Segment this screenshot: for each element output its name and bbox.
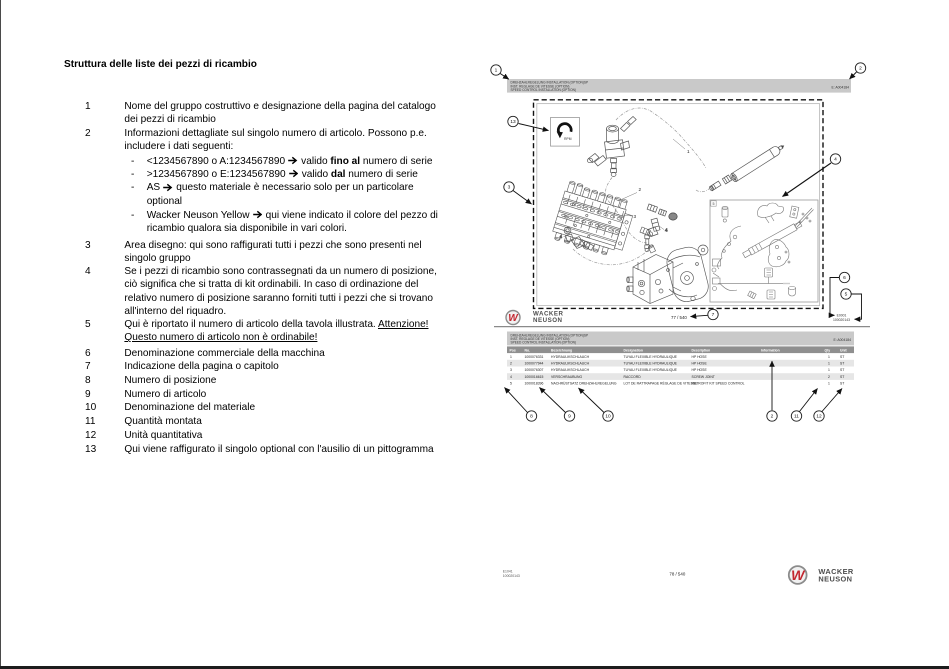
svg-text:1000016615: 1000016615 xyxy=(525,375,544,379)
svg-text:2: 2 xyxy=(639,187,642,192)
svg-text:Qty: Qty xyxy=(825,348,831,352)
svg-text:1000018396: 1000018396 xyxy=(525,382,544,386)
svg-text:TUYAU FLEXIBLE HYDRAULIQUE: TUYAU FLEXIBLE HYDRAULIQUE xyxy=(624,362,678,366)
svg-text:1: 1 xyxy=(495,68,498,74)
svg-text:5: 5 xyxy=(713,202,715,206)
svg-text:SPEED CONTROL INSTALLATION (OP: SPEED CONTROL INSTALLATION (OPTION) xyxy=(511,341,576,345)
svg-text:13: 13 xyxy=(510,119,516,125)
svg-text:2: 2 xyxy=(859,66,862,72)
svg-text:LOT DE RATTRAPAGE RÉGLAGE DE V: LOT DE RATTRAPAGE RÉGLAGE DE VITESSE xyxy=(624,381,699,386)
svg-text:4: 4 xyxy=(560,234,563,239)
svg-text:HP HOSE: HP HOSE xyxy=(692,355,708,359)
svg-text:W: W xyxy=(791,567,806,583)
svg-text:100020143: 100020143 xyxy=(503,574,520,578)
svg-text:RETROFIT KIT SPEED CONTROL: RETROFIT KIT SPEED CONTROL xyxy=(692,382,745,386)
svg-text:Unit: Unit xyxy=(840,348,847,352)
svg-text:HP HOSE: HP HOSE xyxy=(692,362,708,366)
svg-text:12: 12 xyxy=(816,414,822,420)
svg-text:E1041: E1041 xyxy=(503,570,513,574)
svg-text:ST: ST xyxy=(840,362,844,366)
svg-text:Information: Information xyxy=(761,348,780,352)
svg-text:TUYAU FLEXIBLE HYDRAULIQUE: TUYAU FLEXIBLE HYDRAULIQUE xyxy=(624,368,678,372)
svg-text:2: 2 xyxy=(771,414,774,420)
svg-text:2: 2 xyxy=(510,362,512,366)
svg-text:HP HOSE: HP HOSE xyxy=(692,368,708,372)
svg-text:ST: ST xyxy=(840,355,844,359)
svg-text:4: 4 xyxy=(665,228,668,233)
svg-text:RACCORD: RACCORD xyxy=(624,375,642,379)
svg-text:5: 5 xyxy=(510,382,512,386)
svg-text:SCREW JOINT: SCREW JOINT xyxy=(692,375,715,379)
svg-text:7: 7 xyxy=(712,312,715,318)
svg-text:NEUSON: NEUSON xyxy=(533,317,563,324)
svg-text:3: 3 xyxy=(508,185,511,191)
svg-text:VERSCHRAUBUNG: VERSCHRAUBUNG xyxy=(551,375,582,379)
svg-text:1: 1 xyxy=(828,362,830,366)
svg-text:1000076331: 1000076331 xyxy=(525,355,544,359)
svg-text:HYDRAULIKSCHLAUCH: HYDRAULIKSCHLAUCH xyxy=(551,362,590,366)
svg-text:10: 10 xyxy=(605,414,611,420)
svg-text:5: 5 xyxy=(845,292,848,298)
svg-text:ST: ST xyxy=(840,382,844,386)
svg-text:Désignation: Désignation xyxy=(624,348,643,352)
svg-text:Pos: Pos xyxy=(510,348,516,352)
svg-text:100020143: 100020143 xyxy=(833,318,850,322)
svg-text:8: 8 xyxy=(530,414,533,420)
svg-text:9: 9 xyxy=(568,414,571,420)
svg-text:E: A004184: E: A004184 xyxy=(833,338,851,342)
svg-text:4: 4 xyxy=(510,375,512,379)
svg-text:Description: Description xyxy=(692,348,711,352)
svg-text:NACHRÜSTSATZ DREHZAHLREGELUNG: NACHRÜSTSATZ DREHZAHLREGELUNG xyxy=(551,382,617,386)
svg-text:HYDRAULIKSCHLAUCH: HYDRAULIKSCHLAUCH xyxy=(551,368,590,372)
svg-text:2: 2 xyxy=(828,375,830,379)
svg-text:NEUSON: NEUSON xyxy=(818,574,852,583)
svg-text:1: 1 xyxy=(828,382,830,386)
svg-text:6: 6 xyxy=(843,275,846,281)
svg-text:11: 11 xyxy=(794,414,799,420)
svg-text:1000077944: 1000077944 xyxy=(525,362,544,366)
svg-text:1000076307: 1000076307 xyxy=(525,368,544,372)
svg-text:TUYAU FLEXIBLE HYDRAULIQUE: TUYAU FLEXIBLE HYDRAULIQUE xyxy=(624,355,678,359)
svg-text:ST: ST xyxy=(840,375,844,379)
svg-text:SPEED CONTROL INSTALLATION (OP: SPEED CONTROL INSTALLATION (OPTION) xyxy=(511,88,576,92)
svg-text:Bezeichnung: Bezeichnung xyxy=(551,348,572,352)
svg-text:1: 1 xyxy=(510,355,512,359)
svg-text:RPM: RPM xyxy=(564,137,572,141)
svg-text:No.: No. xyxy=(525,348,531,352)
svg-text:77 / 540: 77 / 540 xyxy=(671,315,687,320)
svg-text:3: 3 xyxy=(634,214,637,219)
svg-text:1: 1 xyxy=(828,355,830,359)
svg-text:ST: ST xyxy=(840,368,844,372)
svg-text:E: A004184: E: A004184 xyxy=(831,85,849,89)
svg-text:78 / 540: 78 / 540 xyxy=(669,571,685,576)
svg-text:3: 3 xyxy=(510,368,512,372)
svg-text:W: W xyxy=(508,313,519,324)
svg-text:1: 1 xyxy=(828,368,830,372)
svg-text:4: 4 xyxy=(834,157,837,163)
svg-text:HYDRAULIKSCHLAUCH: HYDRAULIKSCHLAUCH xyxy=(551,355,590,359)
svg-text:1: 1 xyxy=(687,149,690,154)
